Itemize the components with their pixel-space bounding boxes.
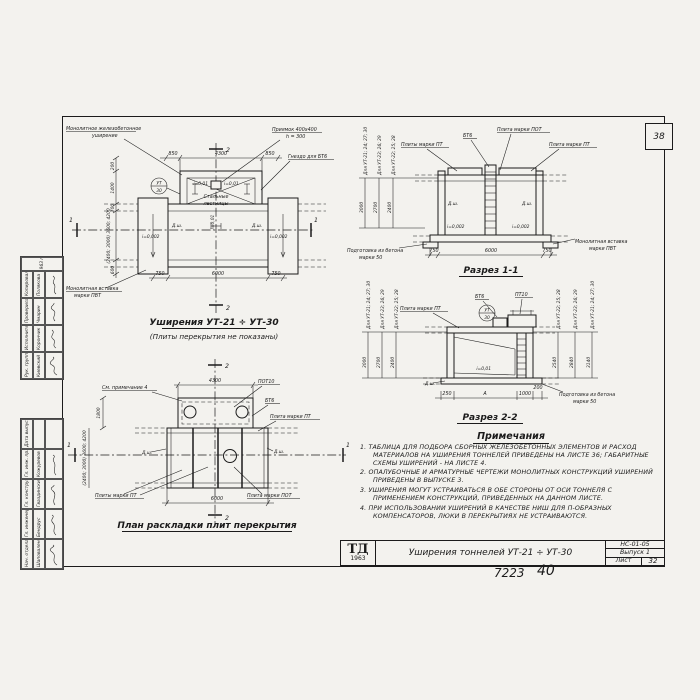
s2r-height-2: 2840 <box>569 357 575 368</box>
stamp-name: Кожуревов <box>33 449 45 479</box>
note-item-2: 2. Опалубочные и арматурные чертежи моно… <box>360 469 662 485</box>
note-item-4: 4. При использовании уширений в качестве… <box>360 505 662 521</box>
stamp-role: Рук. группы <box>21 352 33 379</box>
label-joint-left: Д.ш. <box>171 223 182 229</box>
circled-mark-bottom: 30 <box>156 188 162 194</box>
s2-dim-250: 250 <box>442 391 451 397</box>
plan-top-subtitle: (Плиты перекрытия не показаны) <box>150 332 279 341</box>
label-socket: Гнездо для БТ6 <box>288 154 327 160</box>
s2r-label-1: Для УТ-22; 25; 28 <box>556 289 562 330</box>
dim-left-200: 200 <box>110 162 116 171</box>
title-block-codes: НС-01-05 Выпуск 1 Лист 32 <box>605 541 664 565</box>
td-logo-year: 1963 <box>350 556 365 562</box>
label-slope-right: i=0,002 <box>270 234 288 240</box>
label-slope-left: i=0,002 <box>142 234 160 240</box>
s1-dim-750l: 750 <box>429 248 438 254</box>
plan-top-title: Уширения УТ-21 ÷ УТ-30 <box>149 318 278 328</box>
stamp-name: Киевский <box>33 352 45 379</box>
dim-750-left: 750 <box>155 271 164 277</box>
section-mark-1-right: 1 <box>314 217 318 224</box>
section1-title: Разрез 1-1 <box>463 266 518 276</box>
dim-left-600: 600 <box>110 266 116 275</box>
col-height-2: 2700 <box>373 202 379 213</box>
s2-label-joint: Д.ш. <box>424 381 435 387</box>
signature <box>45 509 63 539</box>
stamp-name: Шаповаленский <box>33 539 45 569</box>
pb-dim-left-variants: (2400; 3000) 3600; 4200 <box>82 430 88 485</box>
pb-mark-1-right: 1 <box>346 442 350 449</box>
dim-left-variants: (2400; 3000) 3600; 4200 <box>106 208 112 263</box>
col-label-3: Для УТ-22; 25; 28 <box>391 135 397 176</box>
dimension-lines <box>113 155 287 281</box>
stamp-role: Копировала <box>21 271 33 298</box>
pb-label-note-ref: См. примечание 4 <box>102 385 147 391</box>
signature <box>45 352 63 379</box>
label-pit-2: h = 300 <box>286 134 305 140</box>
label-pit-1: Приямок 400х400 <box>272 127 317 133</box>
s1-label-pt-plural: Плиты марки ПТ <box>401 142 444 148</box>
pb-label-pt-plural: Плиты марки ПТ <box>95 493 138 499</box>
s2-label-slope: i=0,01 <box>476 366 491 372</box>
stamp-role: Нач. отдела <box>21 539 33 569</box>
label-insert-2: марки ПВТ <box>74 293 102 299</box>
pb-dim-4300: 4300 <box>209 378 221 384</box>
dim-850-right: 850 <box>265 151 274 157</box>
dim-6000: 6000 <box>212 271 224 277</box>
s2-height-columns-right: Для УТ-22; 25; 28 Для УТ-23; 26; 29 Для … <box>533 281 598 378</box>
s2l-height-3: 2400 <box>390 357 396 368</box>
label-slope-top-right: i=0,01 <box>224 181 239 187</box>
s2l-label-2: Для УТ-23; 26; 29 <box>380 289 386 330</box>
pb-label-pot: Плита марки ПОТ <box>247 493 293 499</box>
s2-dim-a: А <box>482 391 486 397</box>
stamp-role: Гл. инж. пр. <box>21 449 33 479</box>
s1-label-pt: Плита марки ПТ <box>549 142 591 148</box>
s1-label-base-2: марки 50 <box>359 255 382 261</box>
label-slope-center: i=0,01 <box>210 214 216 229</box>
s1-slope-left: i=0,002 <box>447 224 465 230</box>
drawing-sheet: 38 <box>0 0 700 700</box>
stamp-role: Гл. инженер <box>21 509 33 539</box>
dim-850-left: 850 <box>168 151 177 157</box>
section-mark-2-top: 2 <box>226 147 230 154</box>
s2r-height-1: 2540 <box>552 357 558 368</box>
note-item-1: 1. Таблица для подбора сборных железобет… <box>360 444 662 468</box>
s1-label-base-1: Подготовка из бетона <box>347 248 403 254</box>
bt6-cap <box>493 318 507 327</box>
s1-label-bt6: БТ6 <box>463 133 472 139</box>
signature <box>45 298 63 325</box>
circled-mark-top: УТ <box>156 181 162 187</box>
circled-mark: УТ 30 <box>151 178 180 194</box>
plan-bottom-title: План раскладки плит перекрытия <box>117 521 297 531</box>
label-slope-top-left: i=0,01 <box>193 181 208 187</box>
stamp-role: Дата выпуска <box>21 419 33 449</box>
pb-dim-6000: 6000 <box>211 496 223 502</box>
s1-label-pot: Плита марки ПОТ <box>497 127 543 133</box>
pb-label-bt6: БТ6 <box>265 398 274 404</box>
signature-empty <box>45 419 63 449</box>
col-label-1: Для УТ-21; 24; 27; 30 <box>363 127 369 176</box>
label-ladders-2: лестницы <box>203 202 229 207</box>
note-1-num: 1. <box>360 444 366 451</box>
note-2-text: Опалубочные и арматурные чертежи монолит… <box>368 469 653 484</box>
stamp-role: Проверила <box>21 298 33 325</box>
widening-extension <box>180 171 262 229</box>
upper-slab <box>178 398 253 428</box>
s2r-label-3: Для УТ-21; 24; 27; 30 <box>590 281 596 330</box>
notes-block: Примечания 1. Таблица для подбора сборны… <box>360 431 662 521</box>
s1-label-insert-2: марки ПВТ <box>589 246 617 252</box>
stamp-year: 1963 г. <box>21 257 63 271</box>
s2-height-columns-left: Для УТ-21; 24; 27; 30 Для УТ-23; 26; 29 … <box>362 281 447 378</box>
note-2-num: 2. <box>360 469 366 476</box>
label-insert-1: Монолитная вставка <box>66 286 119 292</box>
signature <box>45 539 63 569</box>
pt10-block <box>508 315 536 327</box>
footer-order-number: 7223 <box>494 566 525 580</box>
pb-label-pt: Плита марки ПТ <box>270 414 312 420</box>
stamp-name: Гваздинский <box>33 479 45 509</box>
sheet-cell: Лист 32 <box>606 558 664 565</box>
s2l-label-1: Для УТ-21; 24; 27; 30 <box>366 281 372 330</box>
label-joint-right: Д.ш. <box>251 223 262 229</box>
s2-circled-mark: УТ 30 <box>479 305 495 321</box>
stamp-signatures-top: Рук. группы Киевский Исполнитель Корончи… <box>20 256 64 380</box>
s2-dim-1000: 1000 <box>519 391 531 397</box>
title-block: ТД 1963 Уширения тоннелей УТ-21 ÷ УТ-30 … <box>340 540 665 566</box>
s2-dim-200: 200 <box>533 385 542 391</box>
s2-label-pt10: ПТ10 <box>515 292 528 298</box>
stamp-name: Корончик <box>33 325 45 352</box>
label-monolithic-1: Монолитное железобетонное <box>66 126 141 132</box>
col-height-1: 3000 <box>359 202 365 213</box>
note-3-num: 3. <box>360 487 366 494</box>
note-item-3: 3. Уширения могут устраиваться в обе сто… <box>360 487 662 503</box>
pb-joint-left: Д.ш. <box>141 450 152 456</box>
sheet-number: 32 <box>642 558 664 565</box>
signature <box>45 325 63 352</box>
stamp-name <box>33 419 45 449</box>
s1-dim-6000: 6000 <box>485 248 497 254</box>
pb-mark-2-top: 2 <box>225 363 229 370</box>
stamp-name: Чмарин <box>33 298 45 325</box>
s2-label-base-2: марки 50 <box>573 399 596 405</box>
s2l-height-1: 3000 <box>362 357 368 368</box>
height-columns-left: Для УТ-21; 24; 27; 30 Для УТ-23; 26; 29 … <box>359 127 438 228</box>
s1-joint-right: Д.ш. <box>521 201 532 207</box>
stamp-role: Исполнитель <box>21 325 33 352</box>
section1-structure <box>413 165 570 248</box>
s2r-height-3: 3140 <box>586 357 592 368</box>
note-3-text: Уширения могут устраиваться в обе сторон… <box>368 487 612 502</box>
pb-label-pot10: ПОТ10 <box>258 379 274 385</box>
section2-structure <box>423 310 560 384</box>
s2-circle-bottom: 30 <box>484 315 490 321</box>
signature <box>45 449 63 479</box>
note-4-text: При использовании уширений в качестве ни… <box>368 505 611 520</box>
signature <box>45 479 63 509</box>
sheet-label: Лист <box>606 558 642 565</box>
label-monolithic-2: уширение <box>91 134 118 139</box>
col-height-3: 2400 <box>387 202 393 213</box>
signature <box>45 271 63 298</box>
stamp-name: Полякова <box>33 271 45 298</box>
drawing-title: Уширения тоннелей УТ-21 ÷ УТ-30 <box>376 541 605 565</box>
dim-left-1400: 1400 <box>110 182 116 193</box>
section-mark-1-left: 1 <box>69 217 73 224</box>
s2-label-bt6: БТ6 <box>475 294 484 300</box>
tunnel-walls <box>104 204 326 267</box>
s2-label-base-1: Подготовка из бетона <box>559 392 615 398</box>
stamp-name: Бендрус <box>33 509 45 539</box>
s1-dim-750r: 750 <box>542 248 551 254</box>
td-logo: ТД 1963 <box>341 541 376 565</box>
s1-label-insert-1: Монолитная вставка <box>575 239 628 245</box>
note-1-text: Таблица для подбора сборных железобетонн… <box>368 444 648 467</box>
section-mark-2-bottom: 2 <box>226 305 230 312</box>
label-ladders-1: Стальные <box>204 194 229 200</box>
dim-750-right: 750 <box>271 271 280 277</box>
stamp-signatures-bottom: Нач. отдела Шаповаленский Гл. инженер Бе… <box>20 418 64 570</box>
s2-label-pt: Плита марки ПТ <box>400 306 442 312</box>
s2l-height-2: 2700 <box>376 357 382 368</box>
section-2-2-drawing: Для УТ-21; 24; 27; 30 Для УТ-23; 26; 29 … <box>345 285 665 440</box>
pb-joint-right: Д.ш. <box>273 449 284 455</box>
s1-joint-left: Д.ш. <box>447 201 458 207</box>
pb-mark-1-left: 1 <box>67 442 71 449</box>
stamp-role: Гл. конструктор <box>21 479 33 509</box>
s2r-label-2: Для УТ-23; 26; 29 <box>573 289 579 330</box>
slab-layout-plan-drawing: 4300 1800 (2400; 3000) 3600; 4200 6000 2… <box>62 355 352 565</box>
col-label-2: Для УТ-23; 26; 29 <box>377 135 383 176</box>
footer-sheet-number: 40 <box>537 563 555 579</box>
pit-square <box>211 181 221 189</box>
section2-title: Разрез 2-2 <box>462 413 517 423</box>
pb-dim-1800: 1800 <box>96 407 102 418</box>
plan-widening-drawing: 850 4300 850 750 6000 750 200 1400 700 (… <box>64 118 349 358</box>
s1-slope-right: i=0,002 <box>512 224 530 230</box>
section-1-1-drawing: Для УТ-21; 24; 27; 30 Для УТ-23; 26; 29 … <box>345 115 665 290</box>
note-4-num: 4. <box>360 505 366 512</box>
notes-title: Примечания <box>360 431 662 442</box>
